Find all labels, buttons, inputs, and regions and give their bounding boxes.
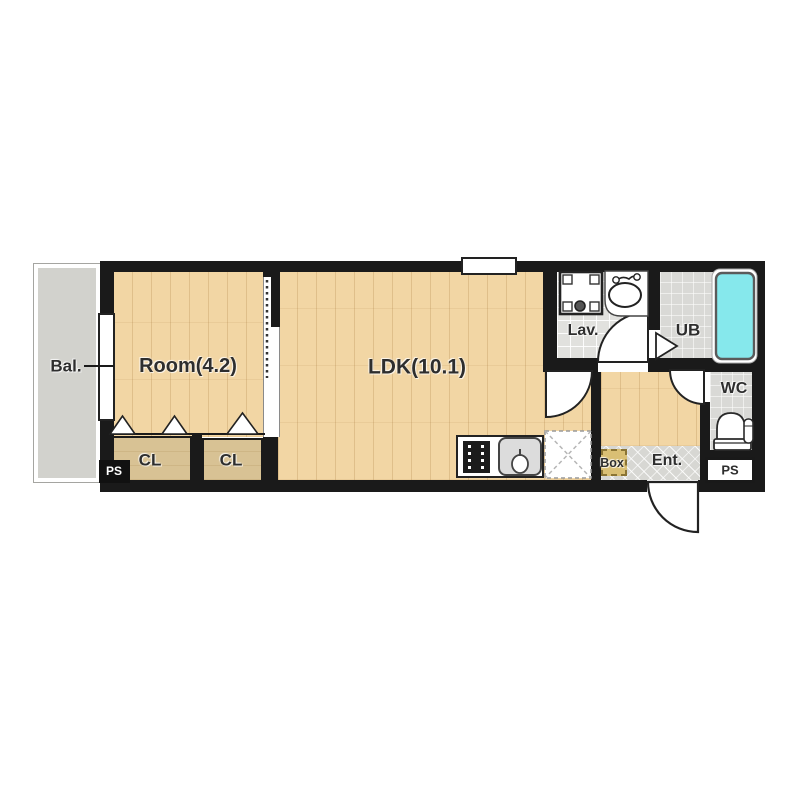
- floorplan-canvas: Bal. Room(4.2) LDK(10.1) Lav. UB WC CL C…: [0, 0, 800, 800]
- kitchen-counter: [457, 436, 543, 477]
- toilet-icon: [714, 413, 753, 450]
- closet-door-triangle-1: [110, 416, 135, 434]
- refrigerator-space-icon: [545, 431, 591, 478]
- bedroom-label: Room(4.2): [139, 356, 237, 376]
- closet-left-label: CL: [139, 452, 162, 469]
- lavatory-label: Lav.: [568, 323, 599, 339]
- pipe-shaft-left-label: PS: [106, 465, 122, 477]
- pipe-shaft-right-label: PS: [721, 464, 738, 477]
- ldk-label: LDK(10.1): [368, 357, 466, 378]
- bathtub-icon: [712, 269, 757, 363]
- ldk-door-swing: [546, 371, 592, 417]
- entrance-door-swing: [648, 482, 698, 532]
- wc-label: WC: [721, 381, 748, 397]
- gas-stove-icon: [463, 441, 490, 473]
- kitchen-sink-icon: [499, 438, 541, 475]
- closet-right-label: CL: [220, 452, 243, 469]
- closet-door-triangle-2: [162, 416, 187, 434]
- fixtures-overlay: [0, 0, 800, 800]
- washing-machine-icon: [560, 272, 602, 314]
- entrance-label: Ent.: [652, 453, 682, 469]
- wc-door-swing: [670, 370, 704, 404]
- unit-bath-step-triangle: [656, 333, 677, 359]
- shoe-box-label: Box: [600, 457, 624, 470]
- unit-bath-label: UB: [676, 322, 701, 339]
- closet-door-triangle-3: [227, 413, 258, 434]
- balcony-label: Bal.: [50, 358, 81, 375]
- lav-door-swing: [598, 312, 648, 362]
- lavatory-sink-icon: [605, 271, 648, 316]
